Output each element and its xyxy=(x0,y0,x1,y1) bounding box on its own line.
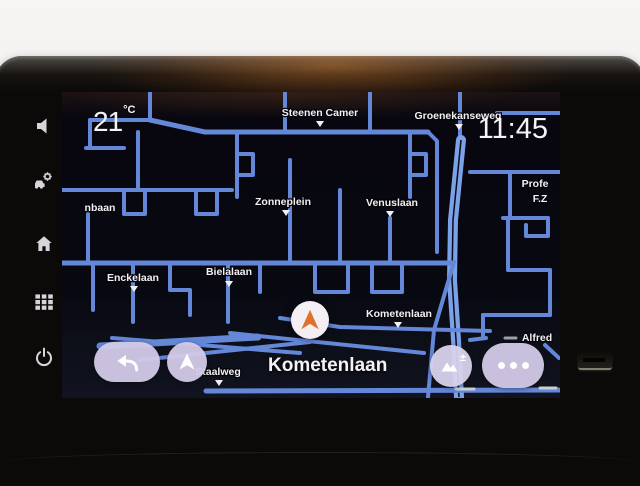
volume-key[interactable] xyxy=(32,114,56,138)
street-label: Kometenlaan xyxy=(366,308,432,320)
street-label: Bielalaan xyxy=(206,266,252,278)
road-line xyxy=(315,263,348,292)
usb-port xyxy=(578,352,612,370)
road-line xyxy=(196,190,217,214)
temperature-unit: °C xyxy=(123,104,135,116)
street-marker xyxy=(386,211,394,217)
dashboard: Steenen CamerGroenekansewegZonnepleinVen… xyxy=(0,0,640,480)
street-label: Profe xyxy=(522,178,549,190)
street-label: Enckelaan xyxy=(107,272,159,284)
vehicle-settings-key[interactable] xyxy=(32,169,56,193)
road-line xyxy=(545,345,559,358)
apps-key[interactable] xyxy=(32,289,56,313)
more-options-button[interactable] xyxy=(482,343,544,388)
street-label: Steenen Camer xyxy=(282,107,358,119)
current-street-display: Kometenlaan xyxy=(268,355,387,377)
temperature-display: 21°C xyxy=(93,104,136,138)
road-line xyxy=(170,263,190,315)
display-bezel: Steenen CamerGroenekansewegZonnepleinVen… xyxy=(0,56,640,486)
road-line xyxy=(428,132,437,252)
bezel-seam xyxy=(4,452,634,483)
road-line xyxy=(150,120,428,132)
vehicle-arrow-icon xyxy=(297,307,323,333)
infotainment-screen: Steenen CamerGroenekansewegZonnepleinVen… xyxy=(62,92,560,398)
map-zoom-mode-button[interactable]: ± xyxy=(430,345,472,387)
road-line xyxy=(470,338,486,340)
street-marker xyxy=(215,380,223,386)
road-line xyxy=(410,154,426,175)
street-label: Venuslaan xyxy=(366,197,418,209)
recenter-button[interactable] xyxy=(167,342,207,382)
street-label: F.Z xyxy=(533,193,548,205)
street-label: nbaan xyxy=(85,202,116,214)
street-marker xyxy=(316,121,324,127)
clock-display: 11:45 xyxy=(478,113,548,146)
power-key[interactable] xyxy=(32,345,56,369)
ellipsis-icon xyxy=(498,362,529,369)
power-icon xyxy=(32,345,56,369)
temperature-value: 21 xyxy=(93,106,122,137)
road-line xyxy=(124,190,145,214)
street-label: Alfred xyxy=(522,332,552,344)
road-line xyxy=(372,263,402,292)
apps-grid-icon xyxy=(32,289,56,313)
home-key[interactable] xyxy=(32,232,56,256)
car-gear-icon xyxy=(32,169,56,193)
navigation-arrow-icon xyxy=(175,350,199,374)
road-line xyxy=(206,390,559,391)
street-label: Zonneplein xyxy=(255,196,311,208)
road-line xyxy=(526,218,548,236)
vehicle-position-marker xyxy=(291,301,329,339)
back-button[interactable] xyxy=(94,342,160,382)
speaker-icon xyxy=(32,114,56,138)
back-arrow-icon xyxy=(112,350,142,374)
home-icon xyxy=(32,232,56,256)
road-line xyxy=(237,154,253,175)
plus-minus-label: ± xyxy=(460,352,466,364)
